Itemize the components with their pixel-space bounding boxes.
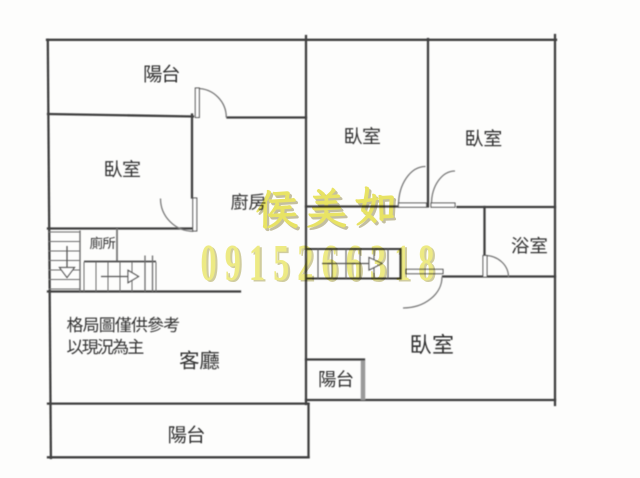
svg-text:1: 1	[249, 234, 265, 292]
svg-text:1: 1	[394, 234, 410, 292]
svg-text:8: 8	[418, 234, 434, 292]
svg-text:0: 0	[201, 234, 217, 292]
svg-text:9: 9	[225, 234, 241, 292]
svg-text:6: 6	[322, 234, 338, 292]
svg-text:6: 6	[346, 234, 362, 292]
svg-text:5: 5	[273, 234, 289, 292]
svg-text:2: 2	[297, 234, 313, 292]
svg-text:3: 3	[370, 234, 386, 292]
